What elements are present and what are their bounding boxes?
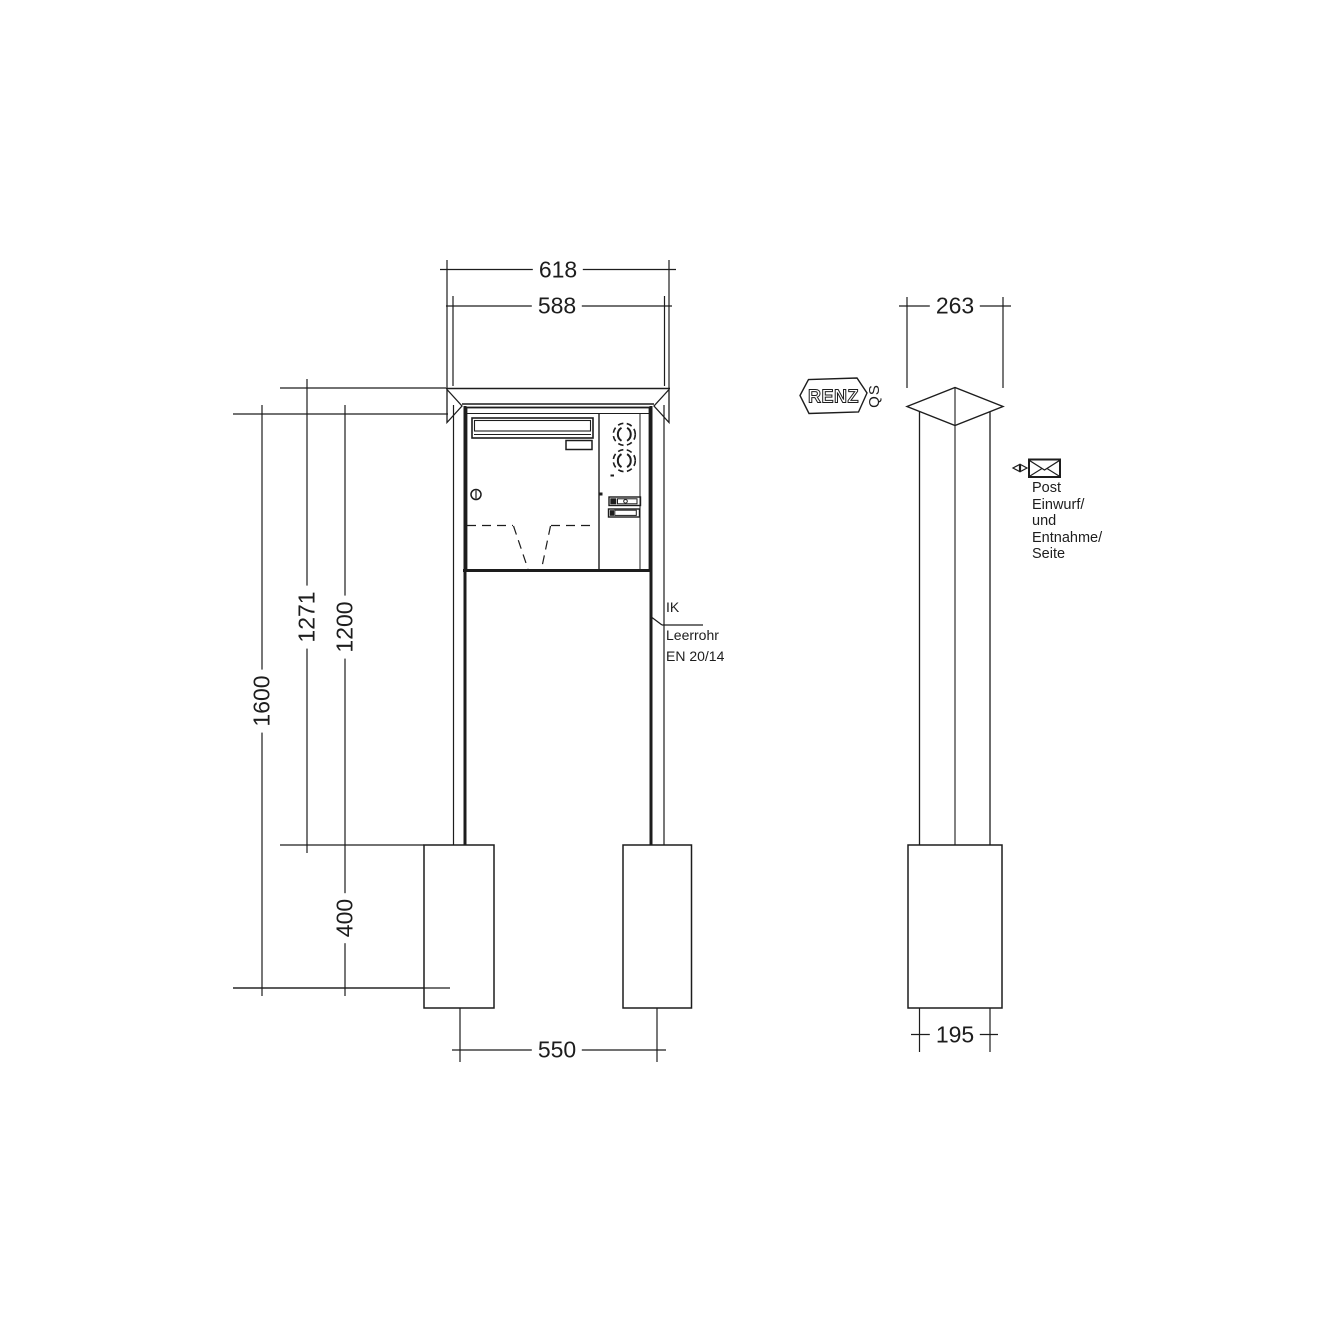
post-note-line: und — [1032, 513, 1102, 530]
front-view — [233, 260, 703, 1062]
dim-label-width-cap: 618 — [533, 258, 583, 281]
dim-label-depth-post: 195 — [930, 1023, 980, 1046]
dim-label-depth-cap: 263 — [930, 295, 980, 318]
post-note-line: Post — [1032, 480, 1102, 497]
foundation-left — [424, 845, 494, 1008]
cap-corner-right — [654, 390, 669, 423]
side-cap-pyramid — [907, 388, 1003, 426]
post-note-line: Seite — [1032, 546, 1102, 563]
dim-label-post-spacing: 550 — [532, 1039, 582, 1062]
post-note-line: Entnahme/ — [1032, 530, 1102, 547]
callout-leader — [650, 616, 703, 625]
double-arrow-icon — [1013, 465, 1027, 472]
side-post — [920, 411, 991, 845]
dim-label-height-total: 1600 — [251, 669, 274, 732]
renz-logo-text: RENZ — [808, 387, 859, 407]
renz-logo: RENZ — [800, 378, 867, 414]
callout-leerrohr: Leerrohr — [666, 628, 719, 643]
dim-label-height-body-to-anchor: 1200 — [334, 595, 357, 658]
dim-label-height-top-to-anchor: 1271 — [296, 585, 319, 648]
foundation-right — [623, 845, 692, 1008]
callout-en-norm: EN 20/14 — [666, 649, 724, 664]
cap-corner-left — [447, 390, 462, 423]
side-view — [899, 297, 1011, 1052]
post-note: Post Einwurf/ und Entnahme/ Seite — [1032, 480, 1102, 563]
post-note-line: Einwurf/ — [1032, 497, 1102, 514]
callout-ik: IK — [666, 600, 679, 615]
rivet-dot — [600, 493, 603, 496]
qs-mark: QS — [866, 384, 883, 408]
drawing-linework: RENZ QS — [0, 0, 1320, 1320]
technical-drawing-canvas: RENZ QS 618 588 1600 1271 1200 400 550 2… — [0, 0, 1320, 1320]
dim-label-anchor-depth: 400 — [334, 893, 357, 943]
side-foundation — [908, 845, 1002, 1008]
rivet-dot — [611, 475, 615, 477]
envelope-icon — [1029, 460, 1060, 478]
dim-label-width-body: 588 — [532, 295, 582, 318]
mailbox-body — [463, 408, 653, 571]
